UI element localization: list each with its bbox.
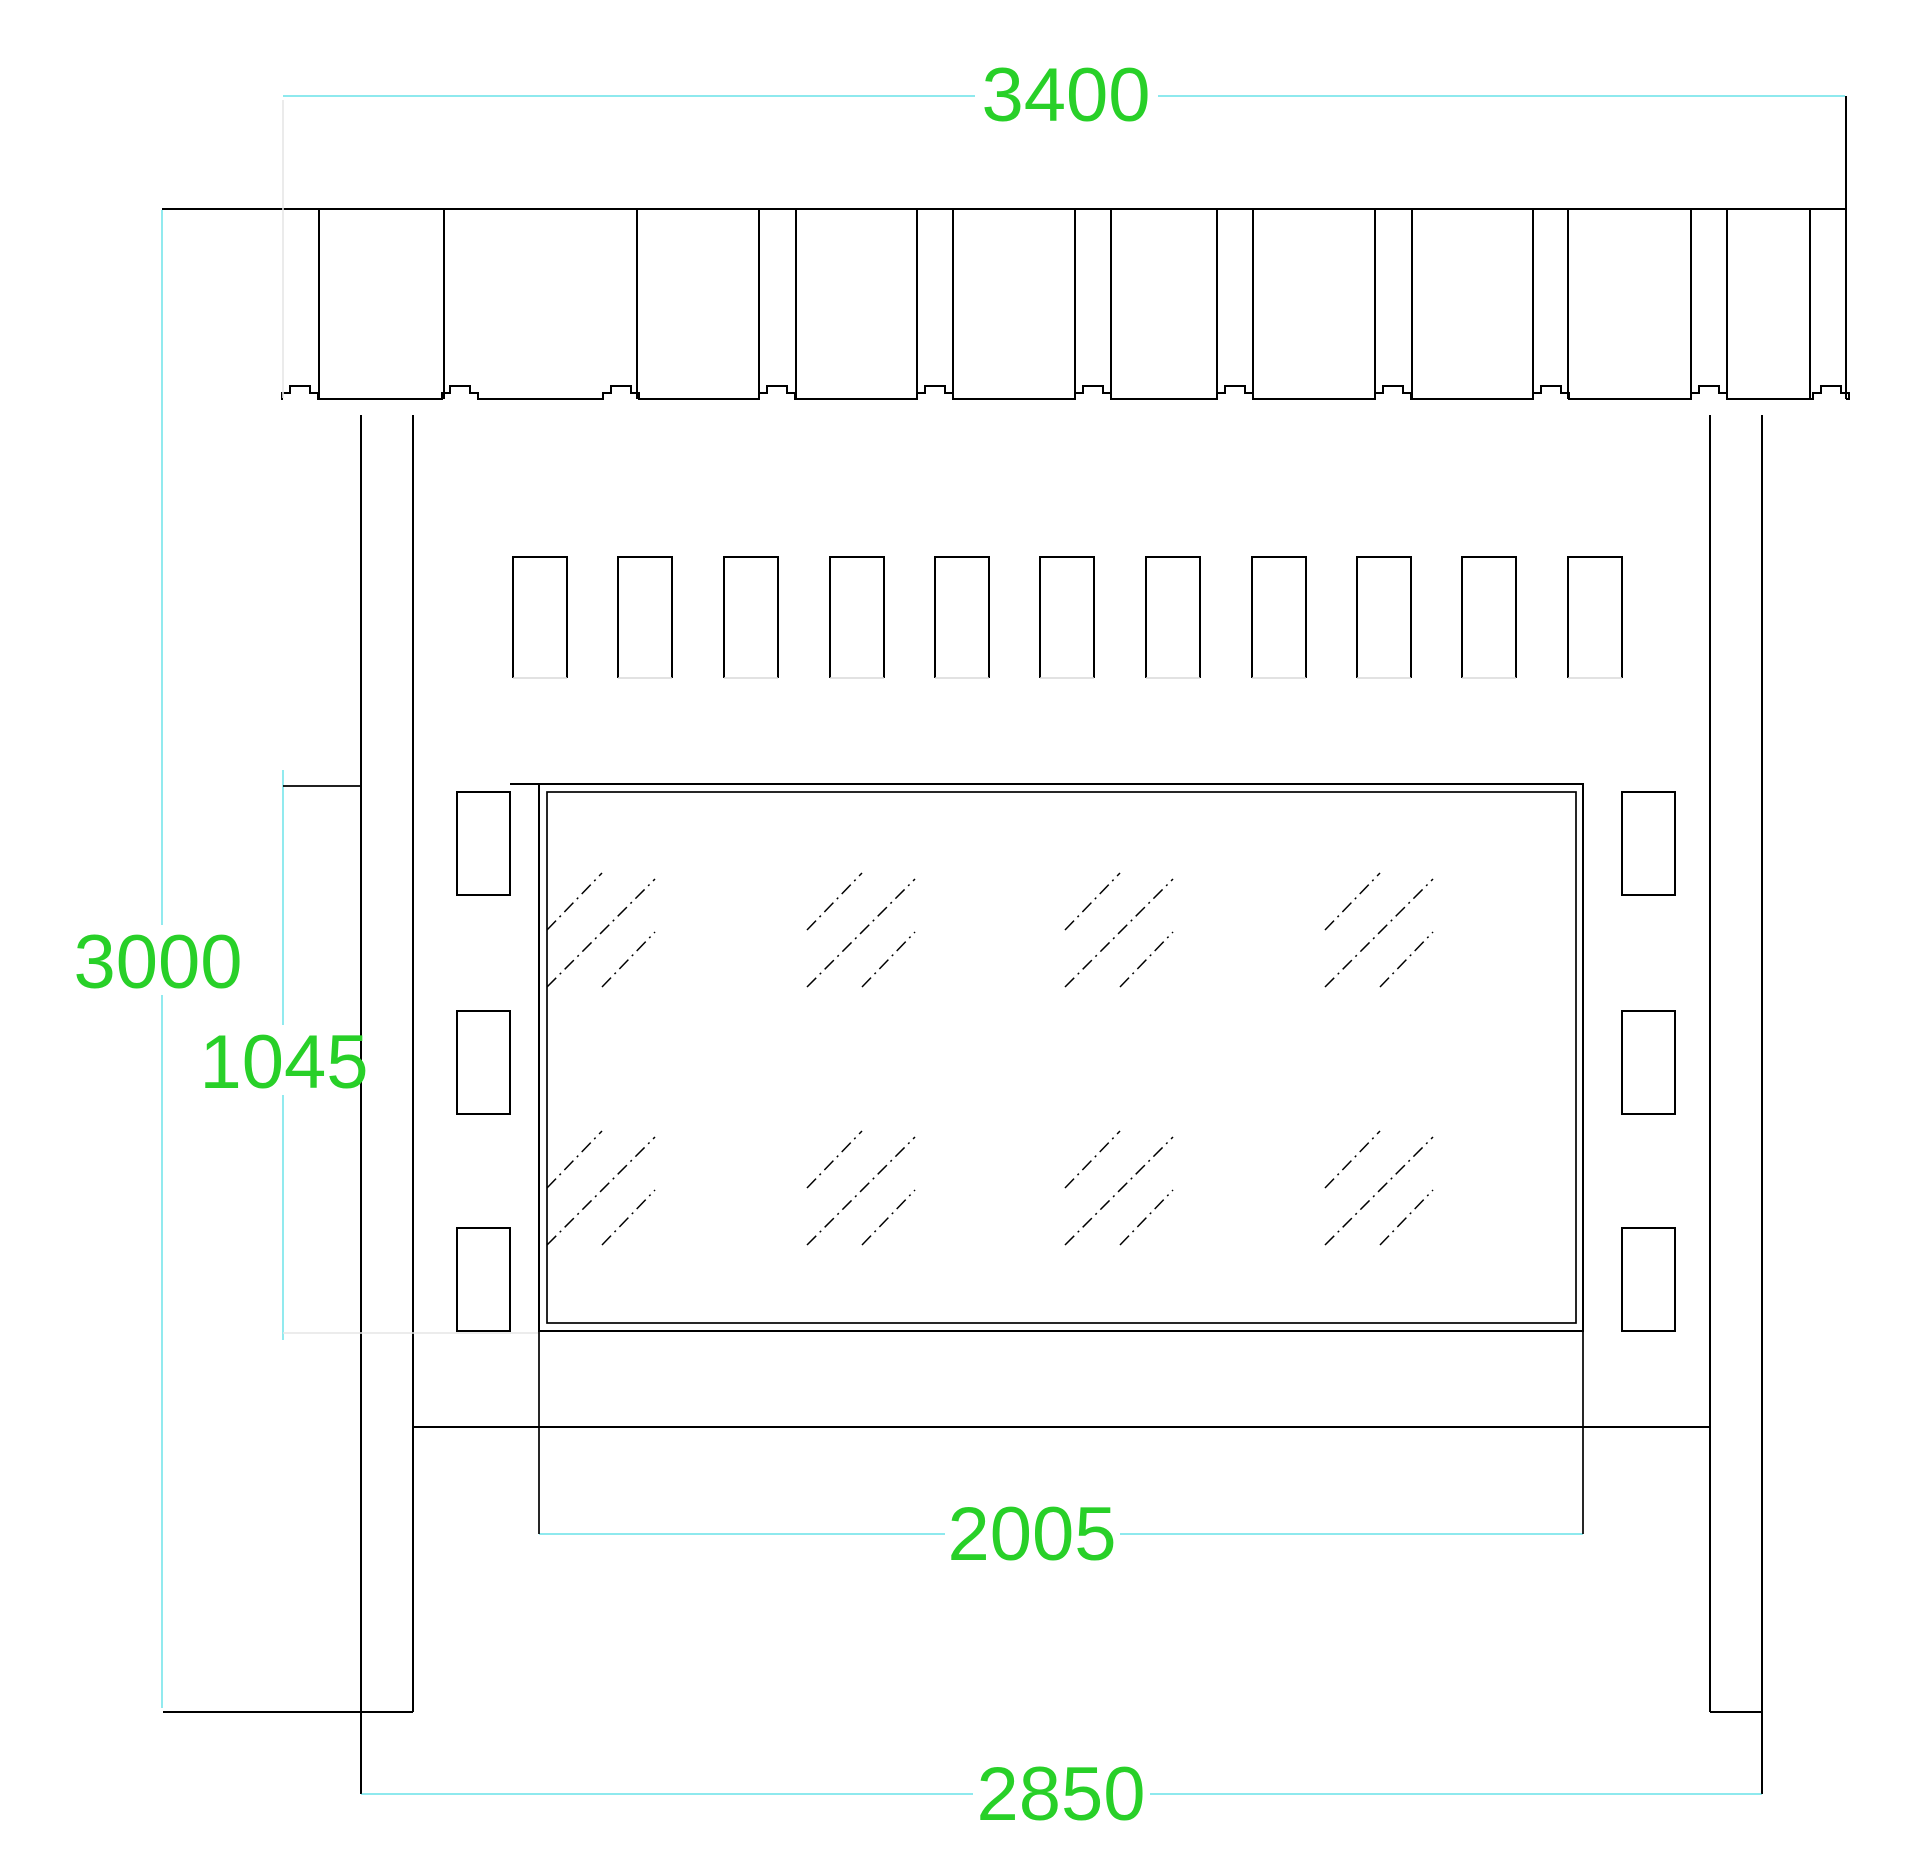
right-bracket <box>1622 1228 1675 1331</box>
glass-hatch-line <box>1065 1137 1173 1245</box>
roof-band-ribs <box>319 209 1810 399</box>
dim-text-overall-height: 3000 <box>73 920 242 1005</box>
right-bracket <box>1622 792 1675 895</box>
glass-hatch-line <box>807 879 915 987</box>
glass-hatch-line <box>602 1190 655 1245</box>
clerestory-vent <box>724 557 778 678</box>
dim-text-frame-width: 2850 <box>976 1752 1145 1837</box>
clerestory-vent <box>1146 557 1200 678</box>
glass-hatch-line <box>1380 932 1433 987</box>
left-bracket <box>457 792 510 895</box>
glass-hatch-line <box>1120 1190 1173 1245</box>
roof-band <box>162 96 1849 399</box>
dim-text-glazing-height: 1045 <box>199 1020 368 1105</box>
left-bracket <box>457 1011 510 1114</box>
glass-hatch-line <box>1065 873 1120 930</box>
dim-text-glazing-width: 2005 <box>947 1492 1116 1577</box>
glass-hatch-line <box>807 873 862 930</box>
clerestory-vent <box>618 557 672 678</box>
dimension-frame-width: 2850 <box>361 1712 1762 1837</box>
clerestory-vent <box>935 557 989 678</box>
glass-hatch-line <box>807 1137 915 1245</box>
glass-hatch-line <box>1065 1131 1120 1188</box>
glass-hatch-line <box>602 932 655 987</box>
dimension-glazing-width: 2005 <box>539 1331 1583 1577</box>
glass-hatch-line <box>547 1131 602 1188</box>
glass-hatch-line <box>807 1131 862 1188</box>
glass-hatch-marks <box>547 873 1433 1245</box>
dimension-roof-width: 3400 <box>283 53 1845 398</box>
left-bracket <box>457 1228 510 1331</box>
dimension-glazing-height: 1045 <box>199 770 539 1340</box>
glass-hatch-line <box>1325 1137 1433 1245</box>
right-post <box>1710 415 1762 1794</box>
glass-hatch-line <box>1380 1190 1433 1245</box>
glass-frame-outer <box>539 784 1583 1331</box>
glass-hatch-line <box>1325 1131 1380 1188</box>
glass-hatch-line <box>1065 879 1173 987</box>
clerestory-vent <box>830 557 884 678</box>
roof-band-bottom-profile <box>282 386 1849 399</box>
glass-hatch-line <box>862 1190 915 1245</box>
glass-hatch-line <box>862 932 915 987</box>
dim-text-roof-width: 3400 <box>981 53 1150 138</box>
clerestory-vent <box>1040 557 1094 678</box>
glass-hatch-line <box>1325 879 1433 987</box>
left-post <box>361 415 413 1794</box>
glass-hatch-line <box>547 879 655 987</box>
dimension-overall-height: 3000 <box>73 210 242 1708</box>
cad-elevation-drawing: 3400 3000 1045 2005 2850 <box>0 0 1920 1873</box>
glass-panel-frame <box>510 784 1583 1331</box>
clerestory-vent <box>1568 557 1622 678</box>
clerestory-vent <box>513 557 567 678</box>
side-brackets <box>457 792 1675 1331</box>
clerestory-vent <box>1252 557 1306 678</box>
glass-frame-inner <box>547 792 1576 1323</box>
glass-hatch-line <box>1325 873 1380 930</box>
glass-hatch-line <box>547 1137 655 1245</box>
glass-hatch-line <box>547 873 602 930</box>
right-bracket <box>1622 1011 1675 1114</box>
clerestory-vent <box>1462 557 1516 678</box>
clerestory-vent <box>1357 557 1411 678</box>
elevation-canvas: 3400 3000 1045 2005 2850 <box>0 0 1920 1873</box>
glass-hatch-line <box>1120 932 1173 987</box>
clerestory-vent-row <box>513 557 1622 678</box>
